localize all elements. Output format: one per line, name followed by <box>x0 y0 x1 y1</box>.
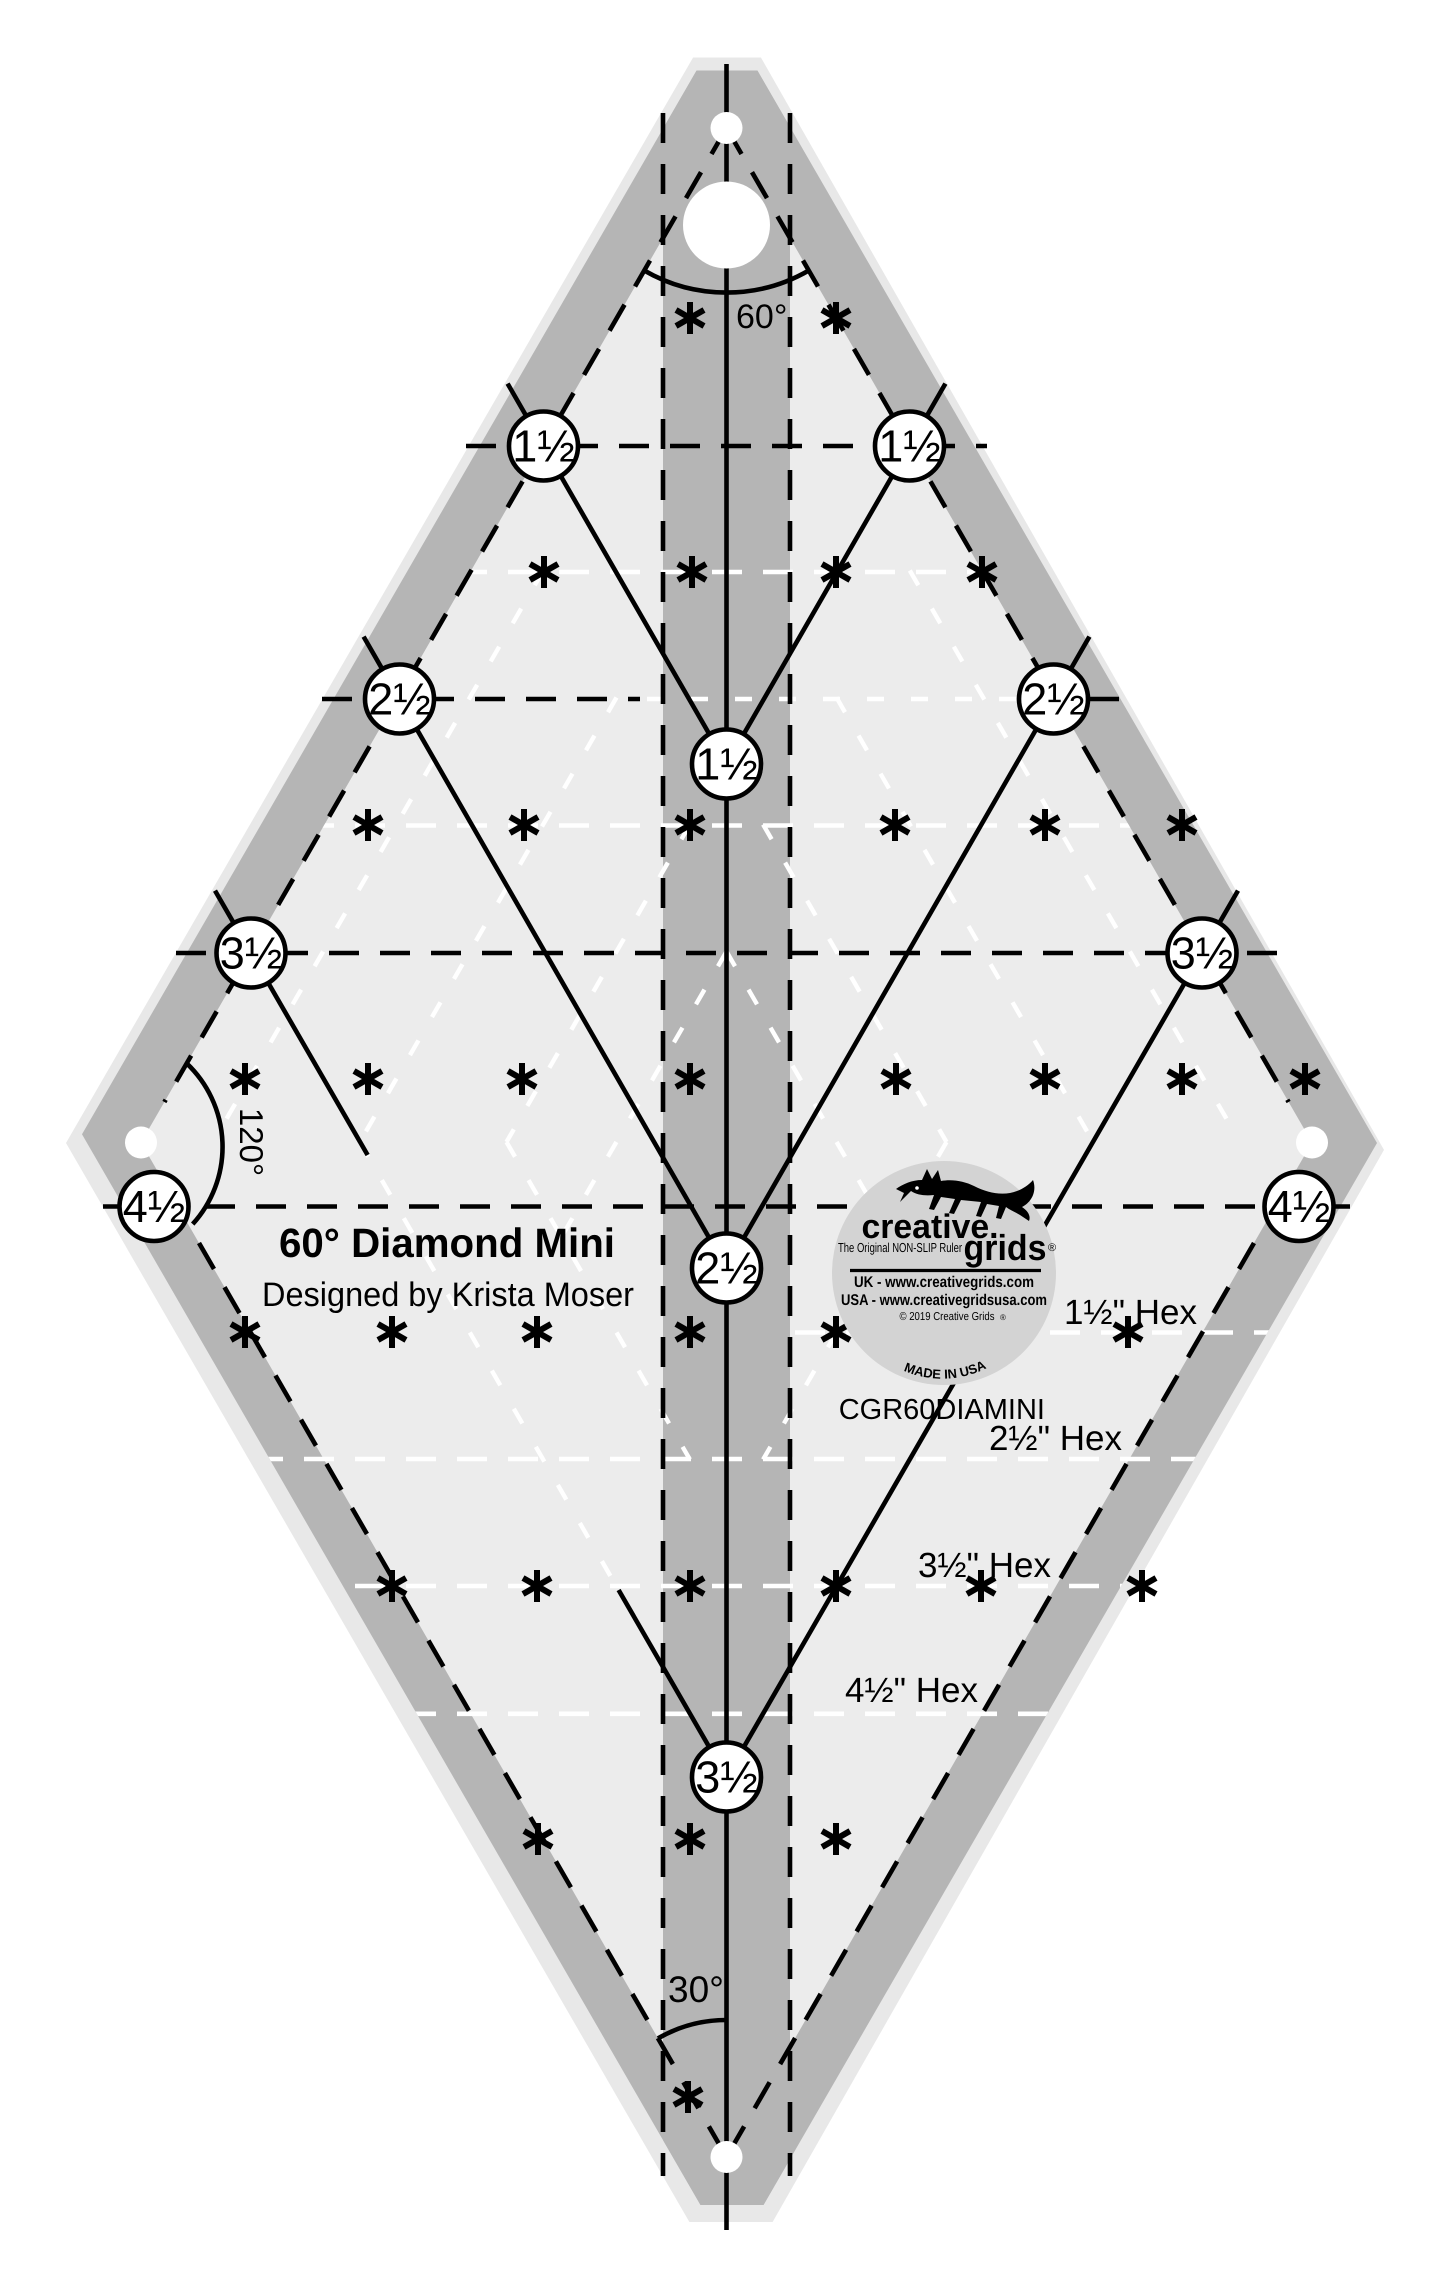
svg-text:grids: grids <box>964 1227 1047 1268</box>
svg-text:®: ® <box>1000 1313 1006 1322</box>
svg-text:1½: 1½ <box>512 421 575 472</box>
svg-text:3½: 3½ <box>1171 928 1234 979</box>
svg-text:3½: 3½ <box>695 1752 758 1803</box>
svg-text:Designed by Krista Moser: Designed by Krista Moser <box>262 1276 634 1314</box>
svg-text:1½" Hex: 1½" Hex <box>1064 1293 1198 1332</box>
svg-text:The Original NON-SLIP Ruler: The Original NON-SLIP Ruler <box>838 1240 962 1255</box>
svg-text:4½: 4½ <box>1268 1181 1331 1232</box>
svg-text:© 2019 Creative Grids: © 2019 Creative Grids <box>900 1311 995 1323</box>
svg-text:120°: 120° <box>233 1108 270 1176</box>
svg-text:2½" Hex: 2½" Hex <box>989 1419 1123 1458</box>
svg-text:1½: 1½ <box>695 739 758 790</box>
svg-text:®: ® <box>1048 1242 1056 1254</box>
svg-text:1½: 1½ <box>878 421 941 472</box>
svg-text:USA - www.creativegridsusa.com: USA - www.creativegridsusa.com <box>841 1292 1047 1309</box>
svg-text:60°: 60° <box>736 298 787 336</box>
svg-text:2½: 2½ <box>1022 674 1085 725</box>
svg-text:60° Diamond Mini: 60° Diamond Mini <box>279 1220 615 1266</box>
svg-text:30°: 30° <box>668 1969 724 2010</box>
svg-text:UK - www.creativegrids.com: UK - www.creativegrids.com <box>854 1274 1034 1291</box>
svg-text:3½: 3½ <box>220 928 283 979</box>
svg-text:2½: 2½ <box>368 674 431 725</box>
svg-text:4½" Hex: 4½" Hex <box>845 1671 979 1710</box>
svg-text:2½: 2½ <box>695 1243 758 1294</box>
svg-text:3½" Hex: 3½" Hex <box>918 1546 1052 1585</box>
svg-text:4½: 4½ <box>123 1181 186 1232</box>
